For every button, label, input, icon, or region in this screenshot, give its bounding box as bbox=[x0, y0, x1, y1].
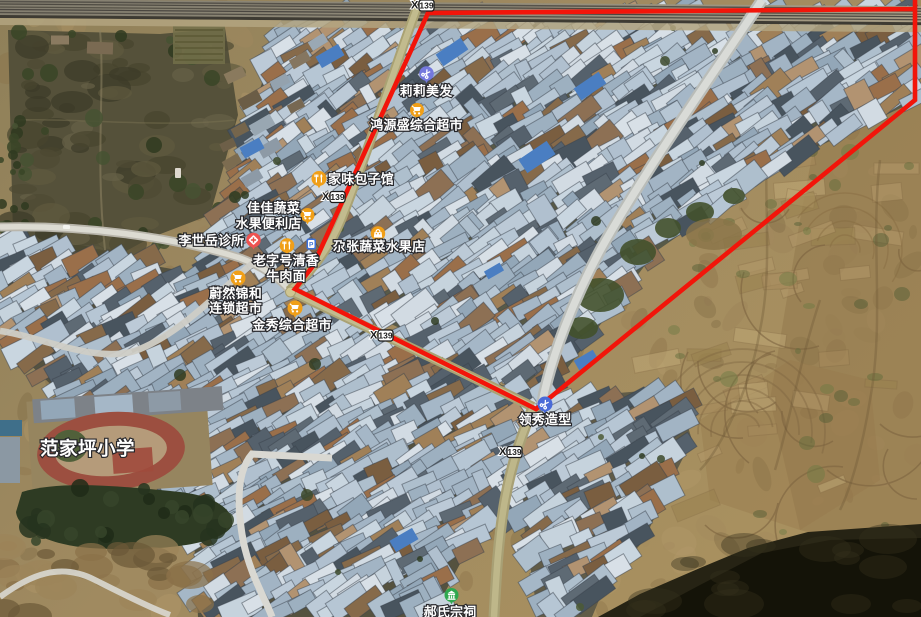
svg-text:P: P bbox=[309, 242, 314, 249]
svg-text:139: 139 bbox=[507, 447, 521, 457]
svg-text:X: X bbox=[499, 446, 507, 458]
svg-text:李世岳诊所: 李世岳诊所 bbox=[177, 233, 244, 248]
svg-text:水果便利店: 水果便利店 bbox=[235, 216, 301, 231]
svg-text:郝氏宗祠: 郝氏宗祠 bbox=[424, 605, 477, 617]
svg-text:范家坪小学: 范家坪小学 bbox=[40, 438, 135, 459]
svg-text:X: X bbox=[322, 191, 330, 203]
svg-text:牛肉面: 牛肉面 bbox=[266, 269, 306, 284]
svg-text:领秀造型: 领秀造型 bbox=[519, 412, 572, 427]
svg-text:139: 139 bbox=[330, 192, 344, 202]
svg-text:139: 139 bbox=[419, 1, 433, 11]
svg-text:尕张蔬菜水果店: 尕张蔬菜水果店 bbox=[333, 239, 425, 254]
svg-text:老字号清香: 老字号清香 bbox=[252, 253, 320, 268]
svg-text:鸿源盛综合超市: 鸿源盛综合超市 bbox=[370, 118, 462, 133]
svg-text:金秀综合超市: 金秀综合超市 bbox=[251, 318, 331, 333]
svg-text:蔚然锦和: 蔚然锦和 bbox=[209, 286, 262, 301]
svg-text:X: X bbox=[370, 330, 378, 342]
svg-text:莉莉美发: 莉莉美发 bbox=[400, 84, 454, 99]
svg-text:佳佳蔬菜: 佳佳蔬菜 bbox=[247, 201, 300, 216]
svg-text:X: X bbox=[411, 0, 419, 12]
svg-text:家味包子馆: 家味包子馆 bbox=[328, 172, 394, 187]
svg-text:139: 139 bbox=[378, 331, 392, 341]
svg-text:连锁超市: 连锁超市 bbox=[209, 301, 262, 316]
